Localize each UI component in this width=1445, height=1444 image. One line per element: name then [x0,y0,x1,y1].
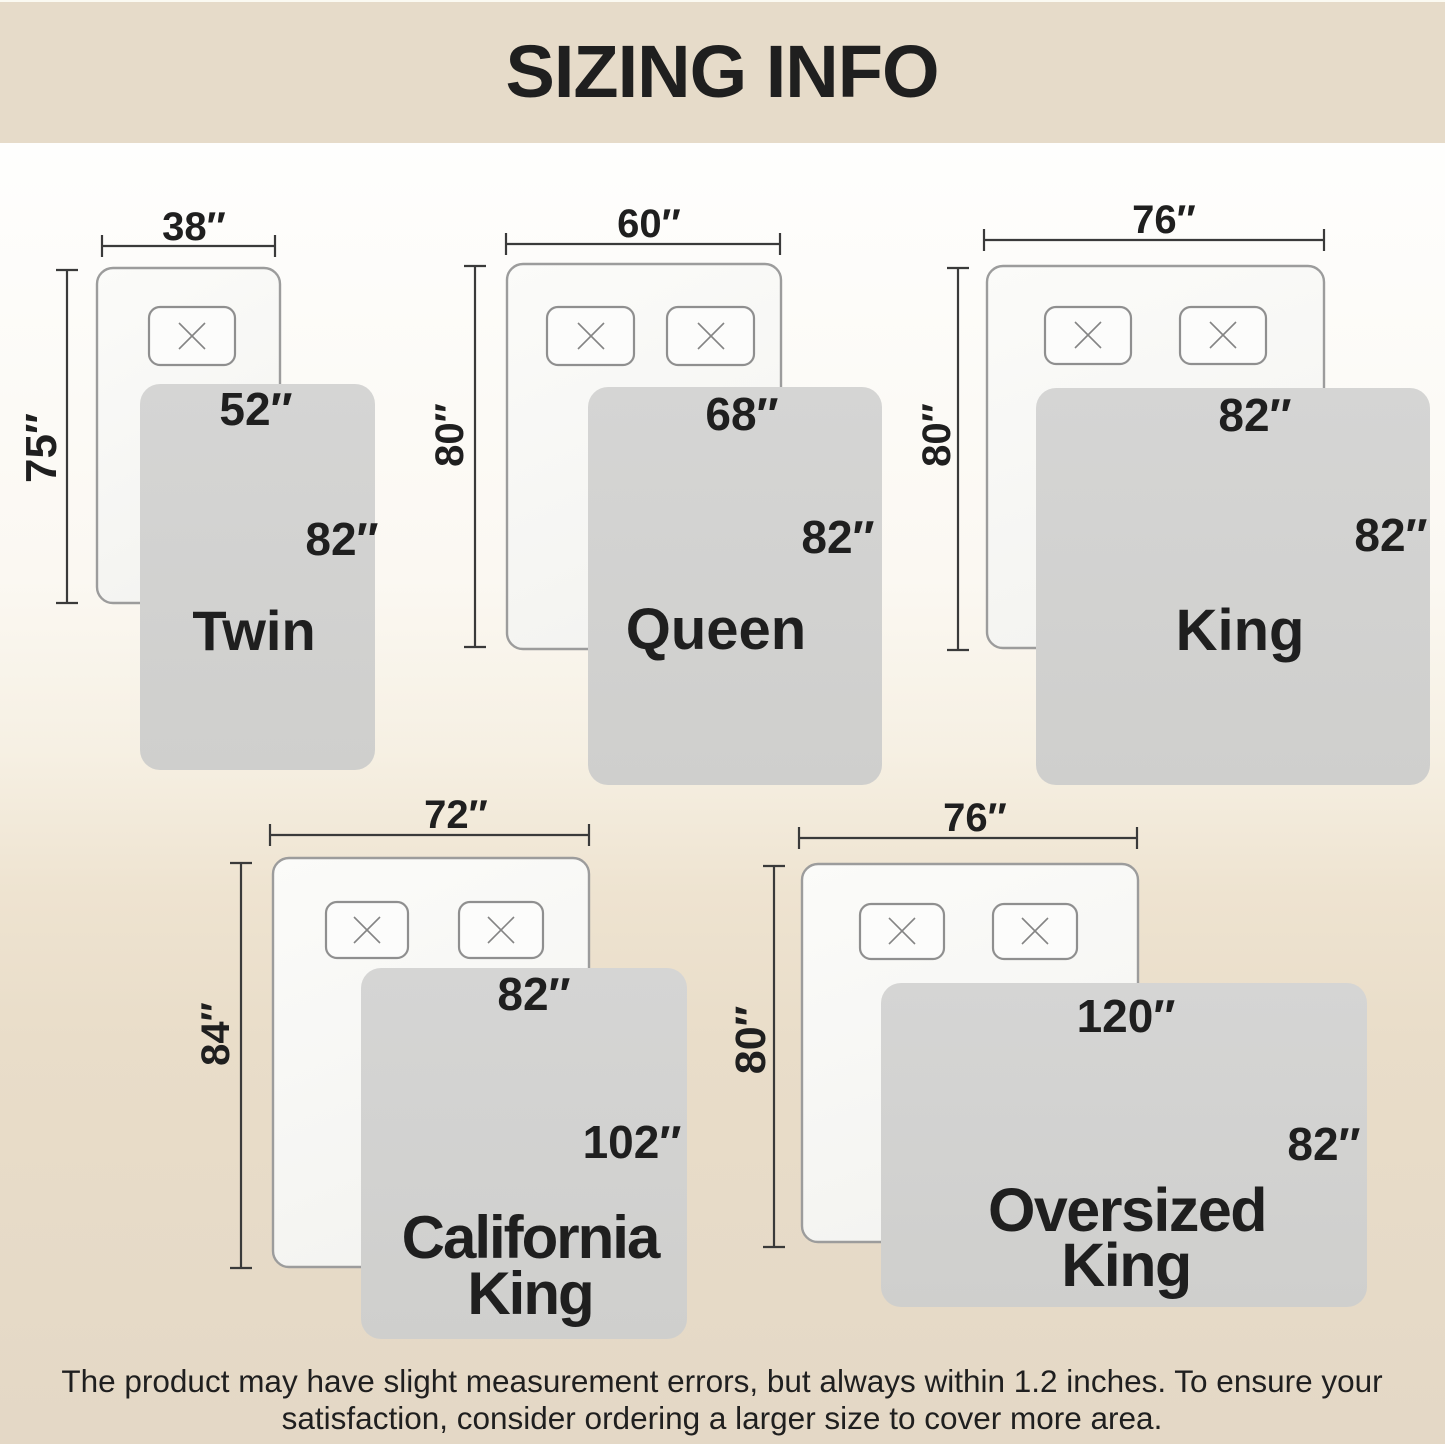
svg-text:82″: 82″ [305,513,378,565]
svg-text:King: King [1176,598,1305,663]
svg-text:King: King [467,1260,592,1327]
svg-text:Queen: Queen [626,597,807,662]
svg-text:King: King [1061,1231,1191,1299]
svg-text:60″: 60″ [617,202,681,246]
svg-text:80″: 80″ [727,1006,775,1074]
svg-text:SIZING INFO: SIZING INFO [506,30,939,113]
svg-text:84″: 84″ [194,1002,238,1066]
svg-text:82″: 82″ [801,511,874,563]
svg-text:satisfaction, consider orderin: satisfaction, consider ordering a larger… [282,1400,1163,1436]
svg-text:76″: 76″ [1132,198,1196,242]
svg-text:Twin: Twin [192,599,315,662]
svg-text:80″: 80″ [915,403,959,467]
svg-text:80″: 80″ [428,403,472,467]
svg-text:76″: 76″ [943,796,1007,840]
svg-text:38″: 38″ [162,205,226,249]
svg-text:75″: 75″ [17,413,66,483]
svg-text:82″: 82″ [1287,1118,1360,1170]
svg-text:82″: 82″ [497,968,570,1020]
svg-text:The product may have slight me: The product may have slight measurement … [61,1363,1382,1399]
svg-text:82″: 82″ [1354,509,1427,561]
svg-text:72″: 72″ [424,793,488,837]
svg-text:82″: 82″ [1218,389,1291,441]
svg-text:102″: 102″ [583,1116,682,1168]
svg-text:52″: 52″ [219,383,292,435]
svg-text:68″: 68″ [705,388,778,440]
svg-text:120″: 120″ [1077,990,1176,1042]
